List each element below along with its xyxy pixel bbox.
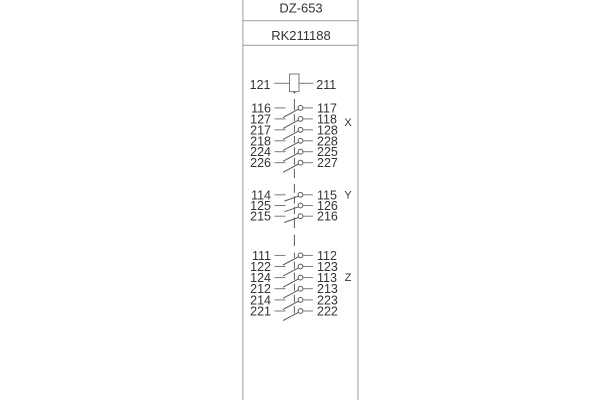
svg-text:221: 221 bbox=[250, 305, 271, 319]
svg-text:121: 121 bbox=[250, 78, 271, 92]
svg-text:Y: Y bbox=[344, 190, 352, 202]
svg-text:227: 227 bbox=[317, 156, 338, 170]
svg-text:216: 216 bbox=[317, 210, 338, 224]
svg-text:222: 222 bbox=[317, 305, 338, 319]
svg-text:RK211188: RK211188 bbox=[271, 28, 331, 43]
svg-text:Z: Z bbox=[345, 272, 352, 284]
svg-text:211: 211 bbox=[316, 78, 336, 92]
svg-text:226: 226 bbox=[250, 156, 271, 170]
svg-text:215: 215 bbox=[250, 210, 271, 224]
svg-text:X: X bbox=[344, 117, 352, 129]
svg-text:DZ-653: DZ-653 bbox=[279, 1, 322, 16]
